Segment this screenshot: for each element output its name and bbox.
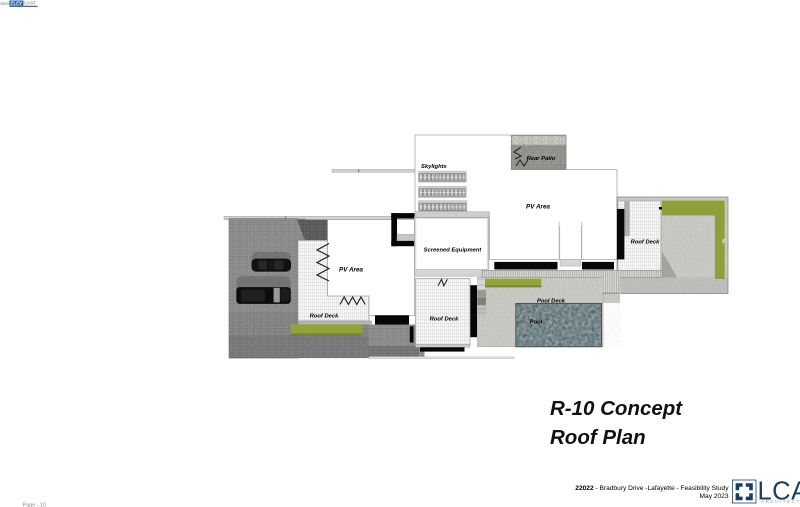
svg-text:ARCHITECTS: ARCHITECTS [761,499,800,504]
svg-text:22022 - Bradbury Drive -Lafaye: 22022 - Bradbury Drive -Lafayette - Feas… [575,485,729,492]
svg-text:PV Area: PV Area [526,204,550,211]
svg-text:CAST: CAST [24,1,36,6]
svg-text:Screened Equipment: Screened Equipment [424,248,483,254]
svg-text:Roof Deck: Roof Deck [631,240,660,246]
svg-text:Roof Deck: Roof Deck [430,317,459,323]
svg-text:Page - 10: Page - 10 [23,503,46,507]
svg-text:Rear Patio: Rear Patio [527,156,556,162]
svg-text:socco: socco [1,2,10,6]
svg-text:ELEV: ELEV [11,1,24,6]
svg-text:Roof Plan: Roof Plan [550,426,646,449]
svg-text:PV Area: PV Area [339,267,363,274]
svg-text:Roof Deck: Roof Deck [310,314,339,320]
svg-text:R-10 Concept: R-10 Concept [550,397,683,420]
svg-text:Pool: Pool [530,320,543,326]
svg-text:Skylights: Skylights [421,164,448,170]
svg-text:May 2023: May 2023 [700,493,729,500]
